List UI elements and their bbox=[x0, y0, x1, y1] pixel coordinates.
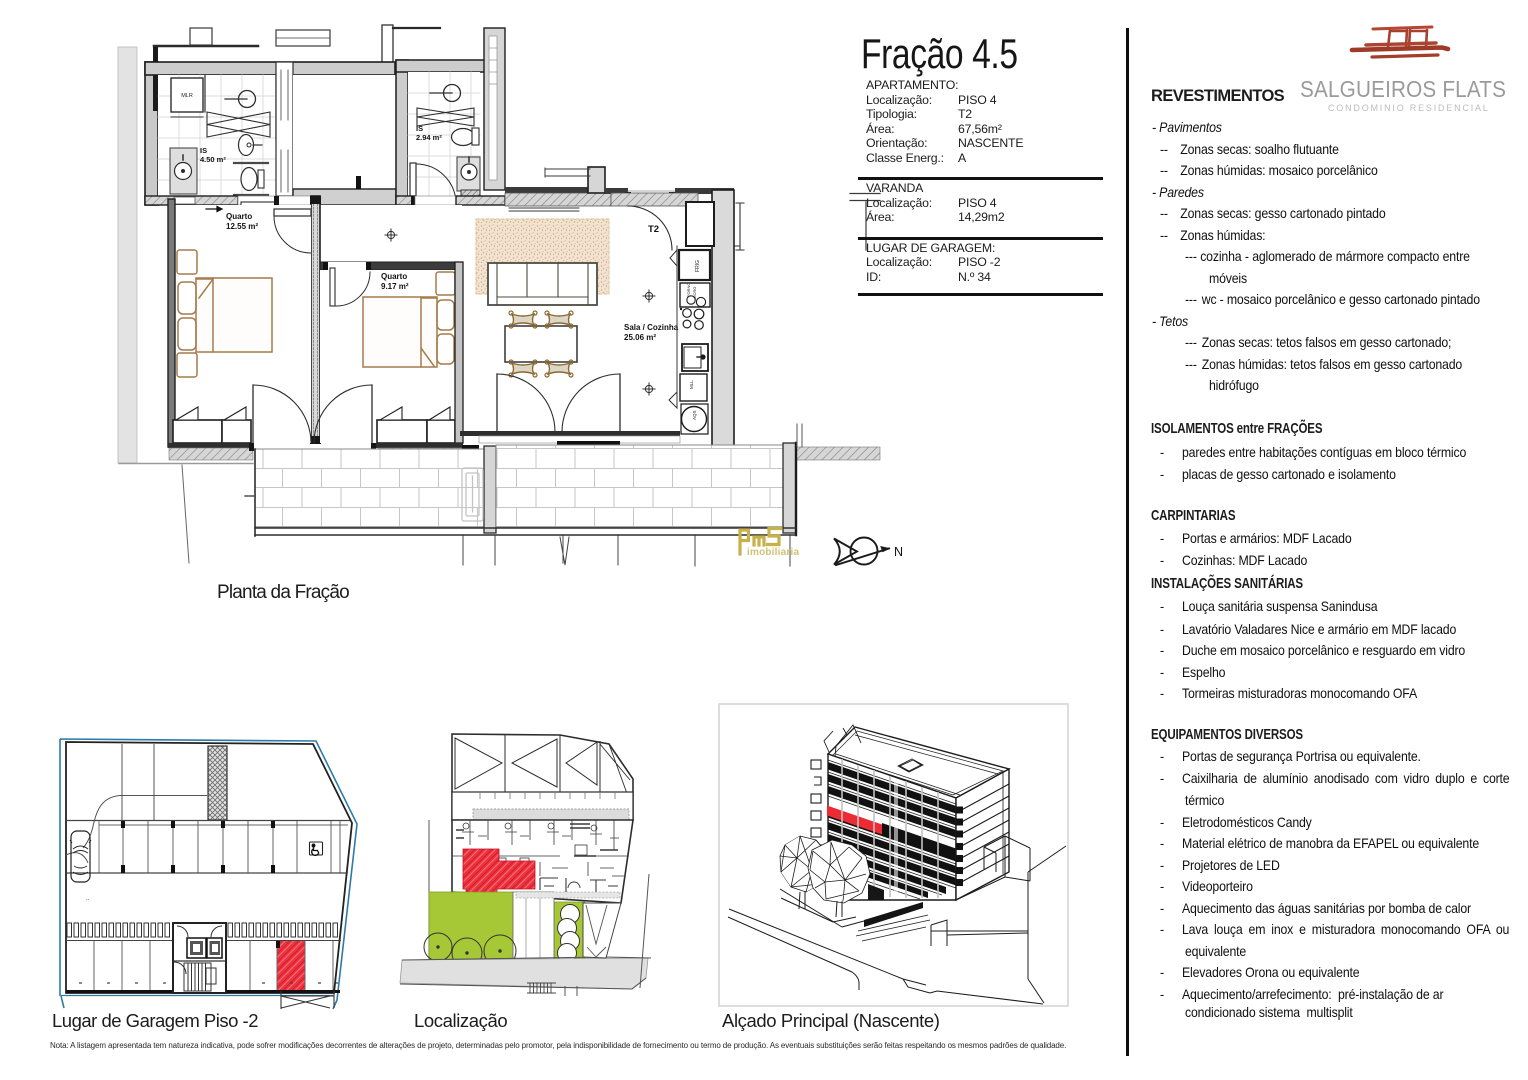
svg-text:AQS: AQS bbox=[692, 410, 697, 420]
svg-text:N: N bbox=[894, 545, 903, 559]
svg-text:2.94 m²: 2.94 m² bbox=[416, 133, 442, 142]
svg-text:IS: IS bbox=[416, 124, 423, 133]
svg-text:FRIG: FRIG bbox=[695, 260, 701, 272]
svg-text:IS: IS bbox=[200, 146, 207, 155]
svg-text:imobiliaria: imobiliaria bbox=[747, 547, 799, 558]
svg-text:..: .. bbox=[86, 896, 90, 902]
svg-text:Quarto: Quarto bbox=[226, 212, 252, 221]
svg-text:4.50 m²: 4.50 m² bbox=[200, 155, 226, 164]
svg-text:Quarto: Quarto bbox=[381, 272, 407, 281]
svg-text:12.55 m²: 12.55 m² bbox=[226, 222, 258, 231]
svg-text:FORNO: FORNO bbox=[686, 283, 691, 297]
svg-text:Sala / Cozinha: Sala / Cozinha bbox=[624, 323, 679, 332]
svg-text:T2: T2 bbox=[648, 224, 659, 235]
svg-text:MLR: MLR bbox=[181, 93, 193, 99]
svg-text:MLL: MLL bbox=[689, 380, 694, 389]
svg-text:9.17 m²: 9.17 m² bbox=[381, 282, 409, 291]
svg-text:25.06 m²: 25.06 m² bbox=[624, 333, 656, 342]
